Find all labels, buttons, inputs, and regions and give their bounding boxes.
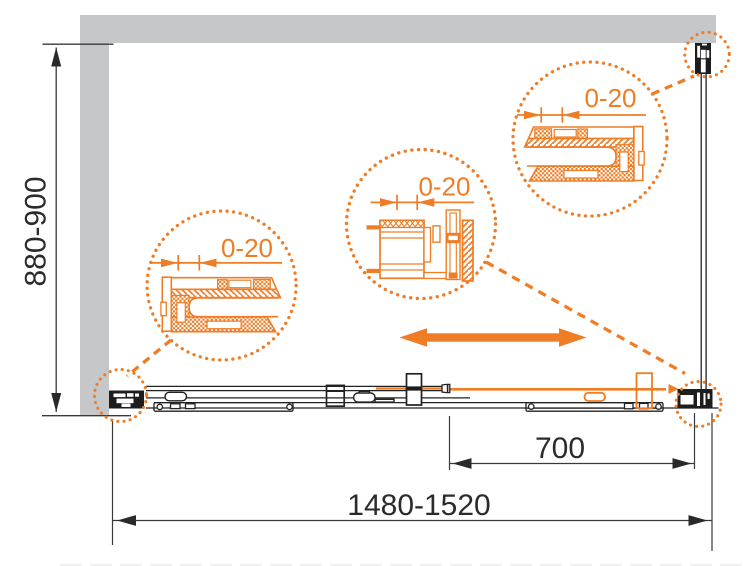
- svg-text:880-900: 880-900: [19, 176, 52, 286]
- svg-text:0-20: 0-20: [584, 83, 636, 113]
- svg-text:0-20: 0-20: [221, 233, 273, 263]
- svg-text:0-20: 0-20: [418, 172, 470, 202]
- svg-text:1480-1520: 1480-1520: [347, 489, 490, 522]
- svg-text:700: 700: [535, 432, 585, 465]
